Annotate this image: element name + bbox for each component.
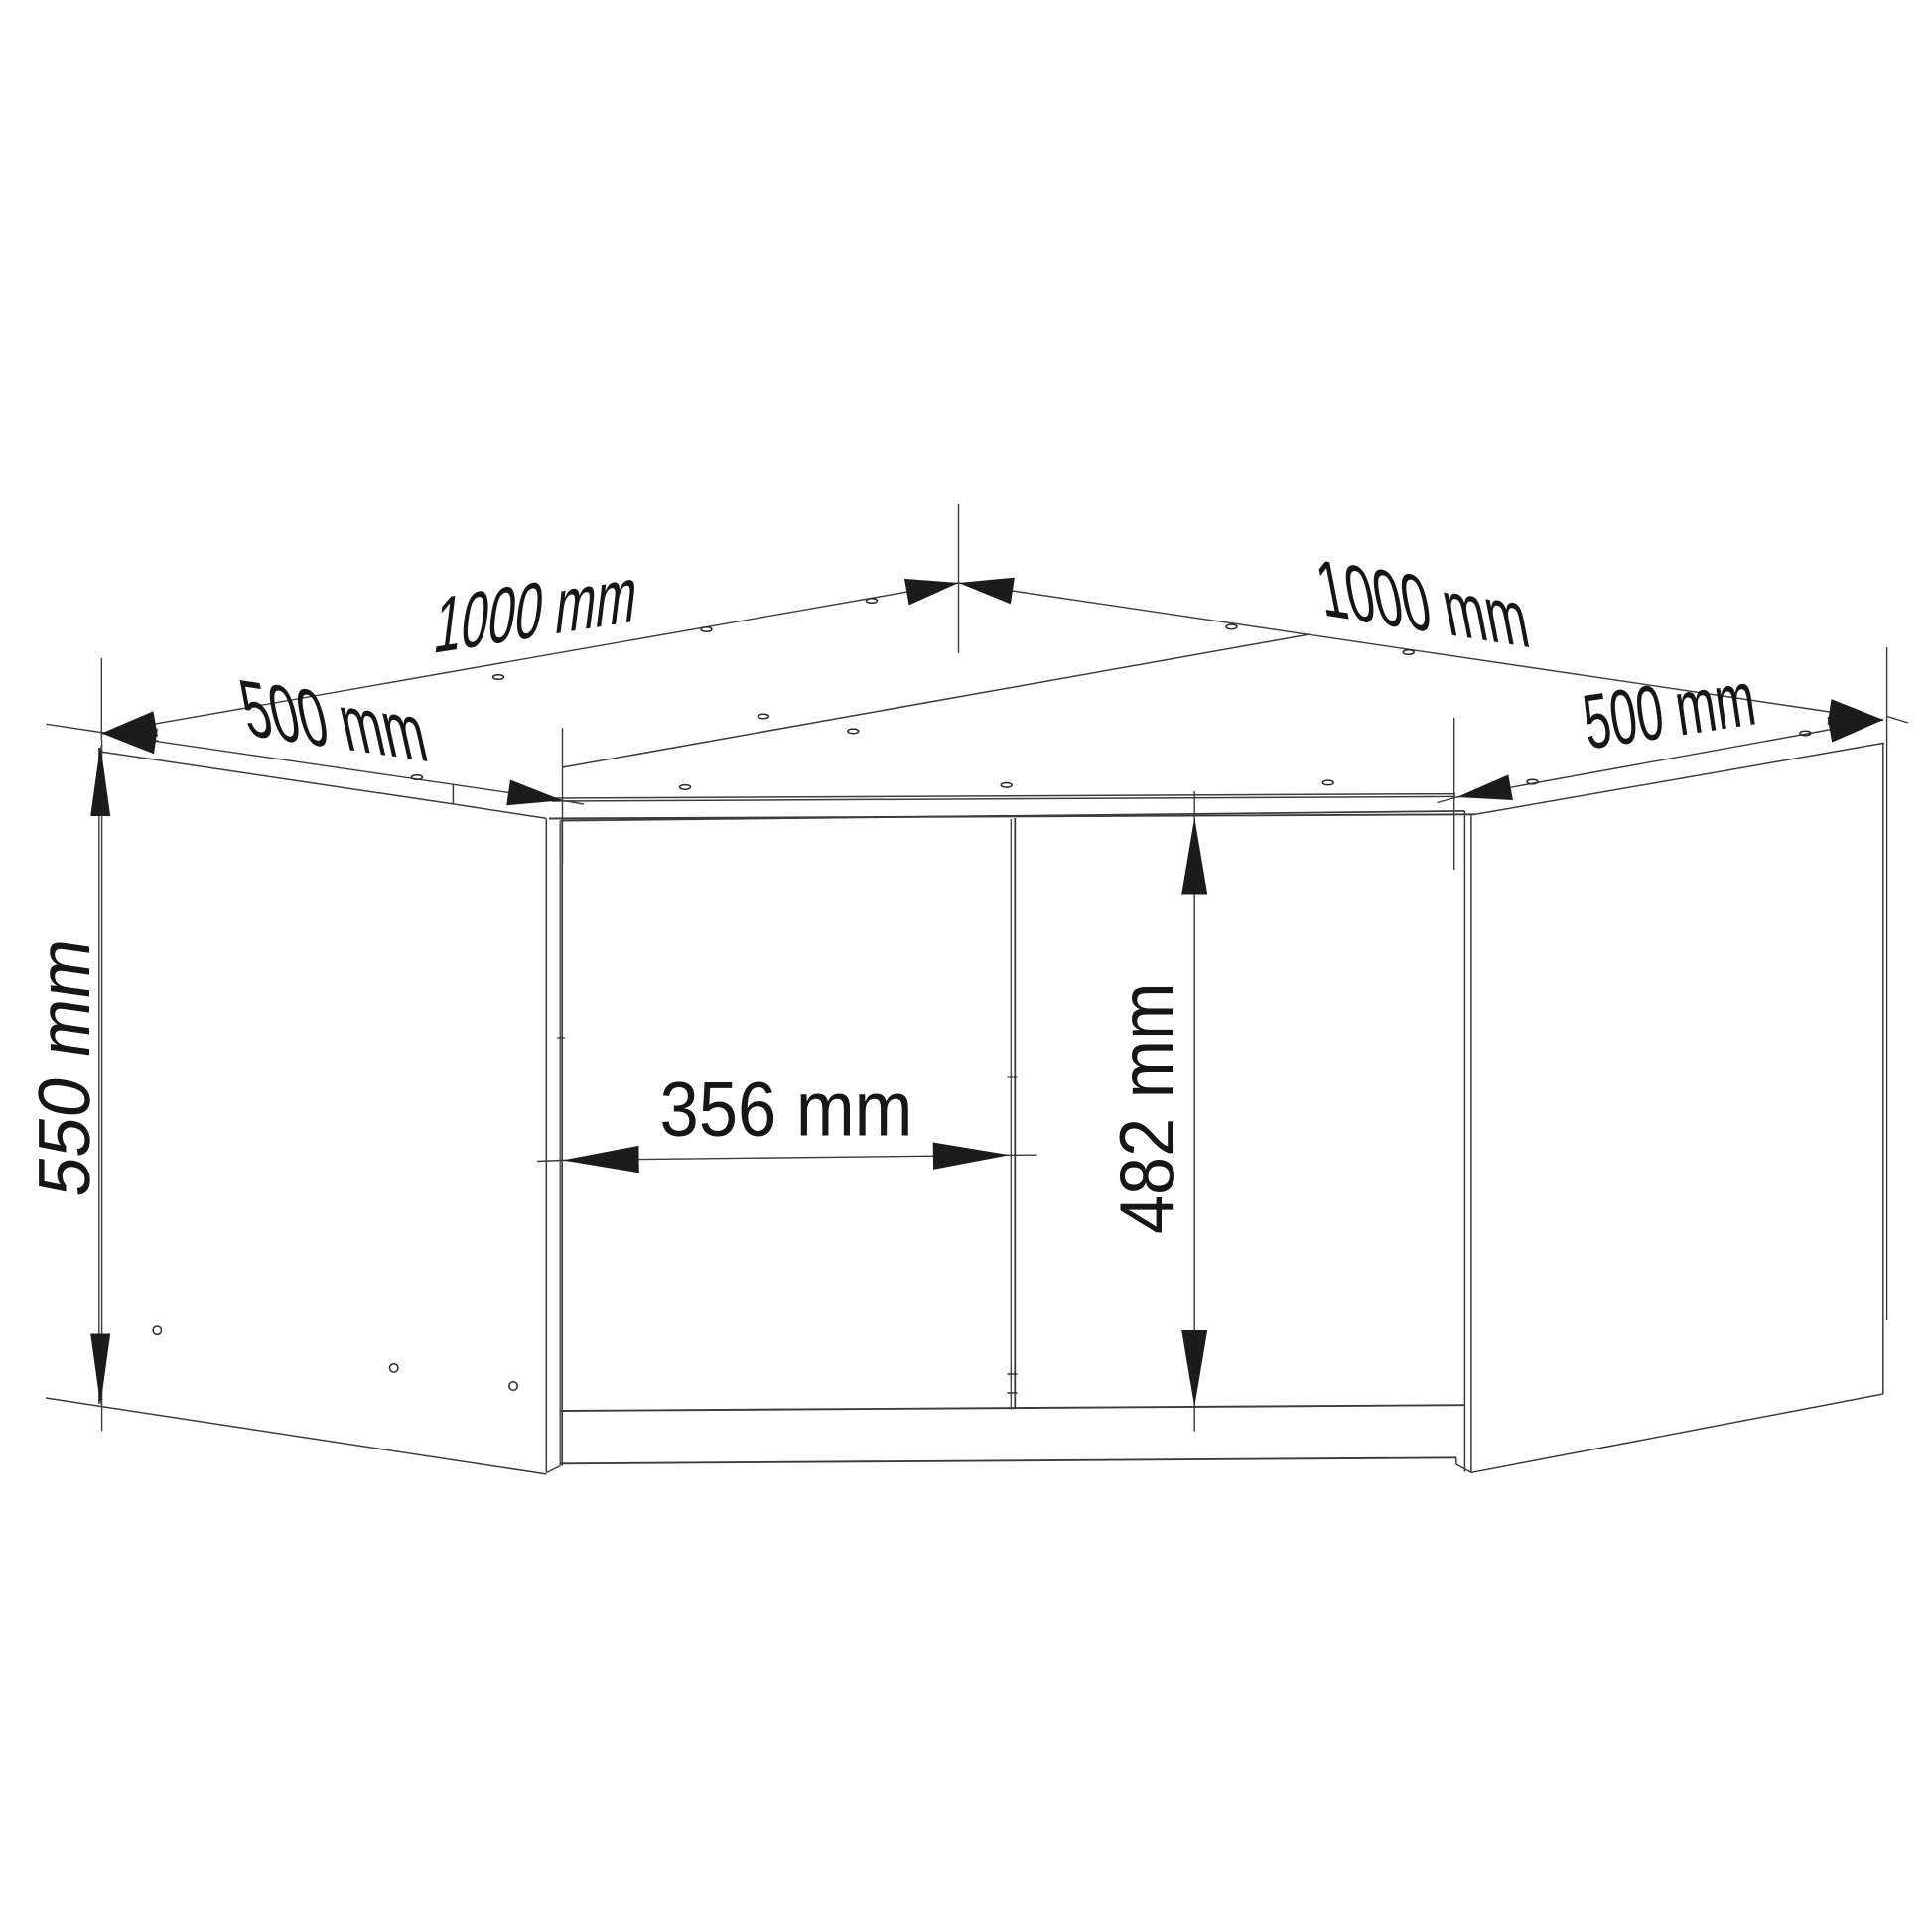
svg-text:550 mm: 550 mm	[23, 932, 105, 1201]
svg-text:356 mm: 356 mm	[660, 1065, 913, 1152]
svg-text:482 mm: 482 mm	[1104, 982, 1190, 1234]
